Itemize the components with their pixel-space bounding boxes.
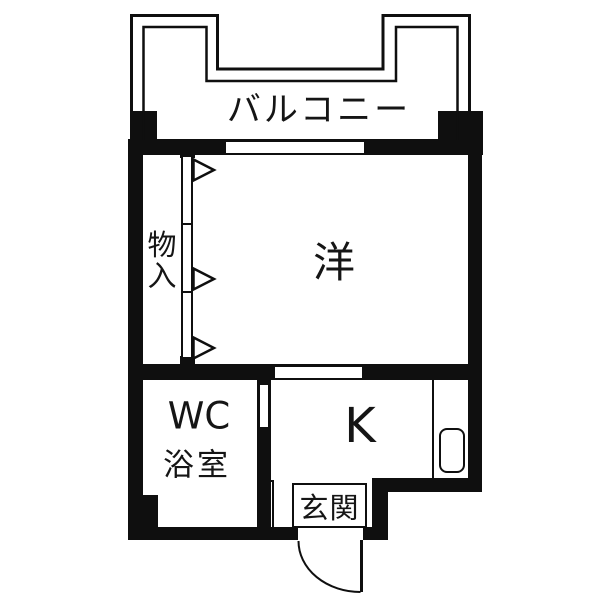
room-label-kitchen: K (344, 401, 375, 451)
sliding-door-triangle-icon (194, 338, 215, 359)
entrance-box: 玄関 (292, 483, 367, 528)
sliding-door-triangle-icon (194, 160, 215, 181)
room-label-bath: 浴室 (163, 450, 231, 483)
room-label-western-room: 洋 (313, 241, 355, 285)
room-label-balcony: バルコニー (227, 93, 411, 129)
room-label-storage: 物 入 (147, 230, 176, 292)
floorplan-canvas: バルコニー 洋 物 入 WC 浴室 K 玄関 (0, 0, 600, 600)
entrance-door-swing-arc (299, 541, 361, 592)
room-label-storage-char-bottom: 入 (147, 261, 176, 292)
room-label-entrance: 玄関 (299, 485, 359, 527)
sliding-door-triangle-icon (194, 269, 215, 290)
room-label-storage-char-top: 物 (147, 230, 176, 261)
room-label-wc: WC (168, 398, 230, 437)
